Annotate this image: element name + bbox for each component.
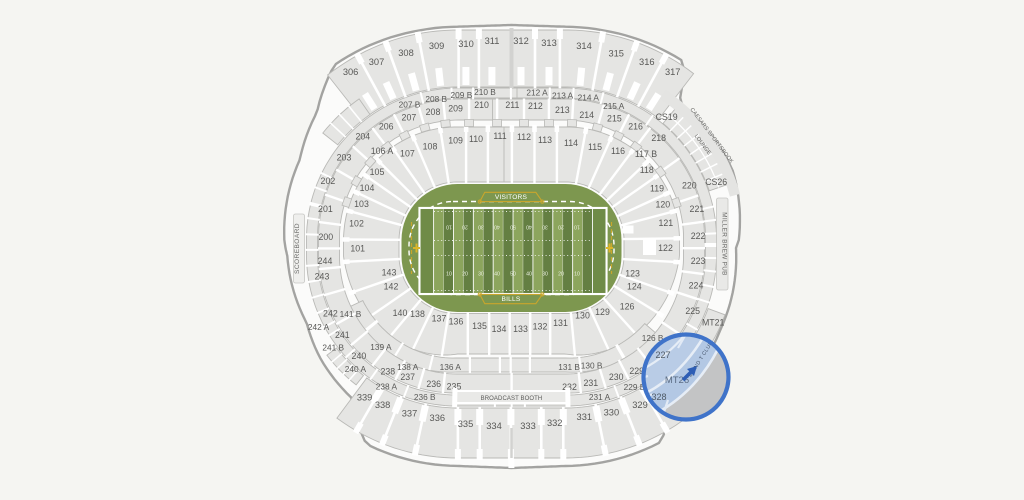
svg-text:241 B: 241 B <box>322 342 344 352</box>
svg-text:20: 20 <box>462 272 468 278</box>
svg-text:312: 312 <box>513 36 529 46</box>
svg-text:130 B: 130 B <box>581 361 603 371</box>
svg-text:306: 306 <box>343 67 359 77</box>
svg-text:216: 216 <box>628 122 643 132</box>
svg-text:111: 111 <box>493 131 506 141</box>
svg-text:230: 230 <box>609 372 624 382</box>
svg-text:314: 314 <box>576 41 592 51</box>
svg-text:113: 113 <box>538 135 552 145</box>
svg-text:335: 335 <box>458 419 474 429</box>
svg-text:222: 222 <box>691 231 706 241</box>
svg-text:207: 207 <box>402 113 417 123</box>
svg-text:243: 243 <box>315 271 330 281</box>
svg-text:50: 50 <box>510 224 516 230</box>
svg-text:333: 333 <box>520 421 536 431</box>
svg-text:105: 105 <box>370 167 385 177</box>
svg-text:20: 20 <box>558 224 564 230</box>
svg-text:244: 244 <box>318 256 333 266</box>
svg-text:110: 110 <box>469 134 483 144</box>
svg-text:106 A: 106 A <box>371 146 394 156</box>
svg-text:214 A: 214 A <box>578 93 600 103</box>
svg-text:30: 30 <box>478 272 484 278</box>
svg-text:142: 142 <box>384 281 399 291</box>
svg-text:332: 332 <box>547 418 563 428</box>
svg-text:328: 328 <box>651 392 666 402</box>
svg-text:208: 208 <box>426 107 441 117</box>
svg-text:136: 136 <box>449 316 464 326</box>
svg-text:307: 307 <box>369 57 385 67</box>
svg-text:40: 40 <box>494 224 500 230</box>
svg-text:107: 107 <box>400 149 415 159</box>
svg-text:336: 336 <box>430 413 446 423</box>
svg-text:102: 102 <box>349 218 364 228</box>
svg-text:20: 20 <box>558 272 564 278</box>
svg-text:10: 10 <box>574 272 580 278</box>
svg-text:213 A: 213 A <box>552 91 574 101</box>
svg-text:114: 114 <box>564 138 578 148</box>
svg-text:238: 238 <box>380 366 395 376</box>
svg-text:236: 236 <box>426 379 441 389</box>
svg-text:338: 338 <box>375 400 391 410</box>
svg-text:118: 118 <box>640 165 654 175</box>
svg-text:MT21: MT21 <box>702 318 725 328</box>
svg-text:218: 218 <box>651 133 666 143</box>
svg-text:215 A: 215 A <box>603 101 625 111</box>
svg-text:238 A: 238 A <box>376 382 398 392</box>
svg-text:211: 211 <box>505 100 519 110</box>
svg-text:138: 138 <box>410 309 425 319</box>
svg-text:231 A: 231 A <box>589 392 611 402</box>
svg-text:240 A: 240 A <box>345 364 367 374</box>
svg-text:30: 30 <box>542 224 548 230</box>
svg-text:208 B: 208 B <box>425 94 447 104</box>
svg-text:214: 214 <box>579 110 594 120</box>
svg-text:309: 309 <box>429 41 445 51</box>
svg-text:136 A: 136 A <box>440 362 462 372</box>
svg-text:220: 220 <box>682 180 697 190</box>
svg-text:212 A: 212 A <box>526 88 548 98</box>
svg-text:109: 109 <box>448 136 463 146</box>
svg-text:236 B: 236 B <box>414 392 436 402</box>
svg-text:313: 313 <box>541 38 557 48</box>
svg-text:317: 317 <box>665 67 681 77</box>
svg-text:137: 137 <box>432 313 447 323</box>
svg-text:10: 10 <box>446 272 452 278</box>
svg-text:331: 331 <box>577 412 593 422</box>
svg-text:40: 40 <box>494 272 500 278</box>
svg-text:210 B: 210 B <box>474 87 496 97</box>
svg-text:311: 311 <box>485 36 500 46</box>
svg-text:227: 227 <box>655 350 670 360</box>
svg-text:240: 240 <box>352 351 367 361</box>
svg-text:315: 315 <box>608 48 624 58</box>
svg-text:116: 116 <box>611 146 625 156</box>
svg-text:50: 50 <box>510 272 516 278</box>
svg-text:212: 212 <box>528 101 543 111</box>
svg-text:30: 30 <box>478 224 484 230</box>
svg-text:112: 112 <box>517 132 531 142</box>
svg-text:135: 135 <box>472 321 487 331</box>
svg-text:BROADCAST BOOTH: BROADCAST BOOTH <box>481 396 543 402</box>
svg-text:339: 339 <box>357 392 373 402</box>
svg-text:143: 143 <box>382 267 397 277</box>
svg-text:CS19: CS19 <box>656 112 678 122</box>
svg-text:119: 119 <box>650 184 664 194</box>
svg-text:103: 103 <box>354 199 369 209</box>
svg-text:122: 122 <box>658 243 673 253</box>
svg-text:225: 225 <box>685 306 700 316</box>
svg-text:117 B: 117 B <box>635 149 657 159</box>
svg-text:221: 221 <box>690 204 705 214</box>
svg-text:213: 213 <box>555 105 570 115</box>
svg-text:231: 231 <box>583 378 598 388</box>
svg-text:130: 130 <box>575 310 590 320</box>
svg-text:121: 121 <box>658 218 673 228</box>
svg-text:129: 129 <box>595 307 610 317</box>
svg-text:330: 330 <box>604 408 620 418</box>
svg-text:337: 337 <box>402 408 418 418</box>
svg-text:133: 133 <box>513 324 528 334</box>
svg-text:VISITORS: VISITORS <box>495 194 528 201</box>
svg-text:40: 40 <box>526 224 532 230</box>
svg-text:204: 204 <box>355 131 370 141</box>
svg-text:124: 124 <box>627 281 642 291</box>
svg-text:120: 120 <box>655 200 670 210</box>
svg-text:316: 316 <box>639 57 655 67</box>
svg-text:223: 223 <box>691 256 706 266</box>
svg-text:237: 237 <box>400 372 415 382</box>
svg-text:CS26: CS26 <box>705 177 727 187</box>
svg-text:203: 203 <box>337 153 352 163</box>
svg-text:200: 200 <box>318 232 333 242</box>
svg-text:126: 126 <box>620 302 635 312</box>
svg-text:241: 241 <box>335 330 350 340</box>
svg-text:131 B: 131 B <box>558 362 580 372</box>
svg-text:224: 224 <box>689 281 704 291</box>
svg-text:132: 132 <box>533 321 548 331</box>
svg-text:140: 140 <box>393 308 408 318</box>
svg-text:134: 134 <box>492 324 507 334</box>
svg-text:MILLER BREW PUB: MILLER BREW PUB <box>721 212 728 275</box>
svg-text:329: 329 <box>632 400 648 410</box>
svg-text:209 B: 209 B <box>451 90 473 100</box>
svg-text:141 B: 141 B <box>340 309 362 319</box>
svg-text:20: 20 <box>462 224 468 230</box>
svg-text:308: 308 <box>398 48 414 58</box>
svg-text:202: 202 <box>321 176 336 186</box>
svg-text:207 B: 207 B <box>399 99 421 109</box>
svg-text:310: 310 <box>458 39 474 49</box>
svg-text:10: 10 <box>446 224 452 230</box>
svg-text:334: 334 <box>486 421 502 431</box>
svg-text:108: 108 <box>423 141 438 151</box>
svg-text:131: 131 <box>553 318 568 328</box>
svg-text:BILLS: BILLS <box>502 296 521 303</box>
svg-text:123: 123 <box>625 268 640 278</box>
svg-text:SCOREBOARD: SCOREBOARD <box>294 223 301 274</box>
svg-text:115: 115 <box>588 142 602 152</box>
svg-text:139 A: 139 A <box>370 342 392 352</box>
svg-text:201: 201 <box>318 204 333 214</box>
svg-text:104: 104 <box>360 183 375 193</box>
svg-text:10: 10 <box>574 224 580 230</box>
svg-text:138 A: 138 A <box>397 362 419 372</box>
svg-text:210: 210 <box>474 100 489 110</box>
svg-text:30: 30 <box>542 272 548 278</box>
svg-text:206: 206 <box>379 122 394 132</box>
svg-text:101: 101 <box>350 244 365 254</box>
svg-text:242: 242 <box>323 308 338 318</box>
svg-text:209: 209 <box>448 103 463 113</box>
svg-text:40: 40 <box>526 272 532 278</box>
svg-text:242 A: 242 A <box>308 322 330 332</box>
svg-text:215: 215 <box>607 113 622 123</box>
